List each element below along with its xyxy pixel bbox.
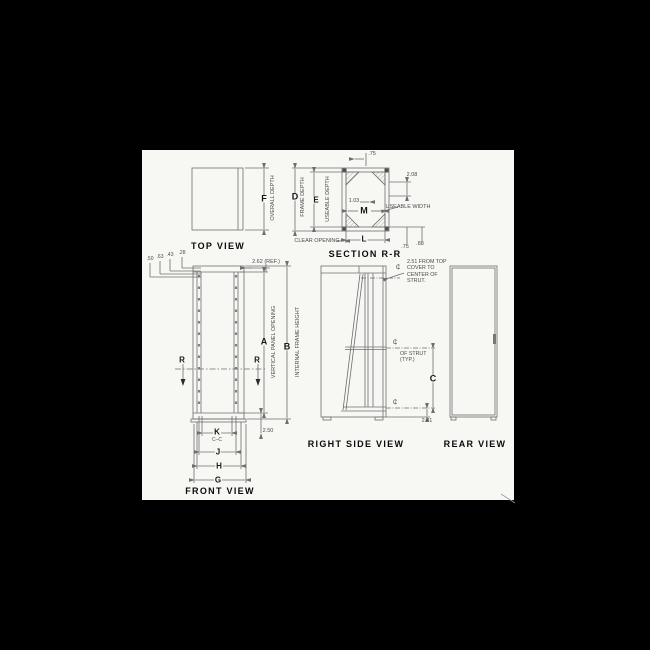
front-offset-4: .28: [179, 250, 186, 256]
strut-location-note: 2.51 FROM TOP COVER TO CENTER OF STRUT.: [407, 259, 447, 285]
right-side-view-title: RIGHT SIDE VIEW: [308, 439, 405, 449]
frame-depth-label: FRAME DEPTH: [300, 177, 306, 216]
corner-mark: [501, 494, 515, 503]
page: { "colors": { "background": "#000000", "…: [0, 0, 650, 650]
useable-width-label: USEABLE WIDTH: [386, 204, 431, 210]
drawing-sheet: F OVERALL DEPTH TOP VIEW D FRAME DEPTH E…: [142, 150, 514, 500]
front-bottom-ref-value: 2.50: [263, 428, 274, 434]
dim-letter-a: A: [260, 339, 269, 346]
strut-location-note-line4: STRUT.: [407, 278, 447, 284]
centerline-symbol-top: ₵: [396, 265, 400, 271]
section-rr-title: SECTION R-R: [329, 249, 402, 259]
centerline-symbol-bottom: ₵: [393, 400, 397, 406]
strut-typ-note: OF STRUT (TYP.): [400, 351, 426, 364]
useable-depth-label: USEABLE DEPTH: [325, 176, 331, 222]
overall-depth-label: OVERALL DEPTH: [270, 175, 276, 220]
internal-frame-height-label: INTERNAL FRAME HEIGHT: [295, 307, 301, 377]
clear-opening-label: CLEAR OPENING: [294, 238, 339, 244]
dim-letter-f: F: [260, 196, 268, 203]
rear-offset-value: 2.08: [407, 172, 418, 178]
dim-letter-g: G: [214, 477, 222, 484]
rear-view-title: REAR VIEW: [444, 439, 507, 449]
dim-letter-c: C: [429, 376, 438, 383]
dim-letter-e: E: [312, 197, 319, 204]
dim-letter-j: J: [215, 449, 221, 456]
rear-view-outline: [450, 266, 497, 420]
bottom-offset-b-value: .88: [416, 241, 424, 247]
gusset-offset-value: 1.03: [349, 198, 360, 204]
strut-typ-note-line2: (TYP.): [400, 357, 426, 363]
dim-letter-l: L: [361, 236, 368, 243]
dim-letter-b: B: [283, 344, 292, 351]
front-offset-2: .63: [157, 254, 164, 260]
bottom-offset-a-value: .75: [401, 244, 409, 250]
dim-letter-h: H: [215, 463, 223, 470]
dim-letter-d: D: [291, 194, 300, 201]
top-view-outline: [192, 168, 269, 230]
section-marker-r-left: R: [178, 357, 186, 364]
front-top-ref-value: 2.62 (REF.): [252, 259, 280, 265]
dim-letter-k: K: [213, 429, 221, 436]
top-view-title: TOP VIEW: [191, 241, 245, 251]
right-side-view-outline: [321, 266, 435, 420]
section-marker-r-right: R: [253, 357, 261, 364]
centerline-symbol-mid: ₵: [393, 340, 397, 346]
vertical-panel-opening-label: VERTICAL PANEL OPENING: [271, 306, 277, 378]
k-note: C–C: [212, 437, 222, 443]
front-view-title: FRONT VIEW: [185, 486, 255, 496]
top-thickness-value: .75: [368, 151, 376, 157]
dim-letter-m: M: [359, 208, 369, 215]
front-offset-1: .50: [147, 256, 154, 262]
front-offset-3: .43: [167, 252, 174, 258]
side-bottom-ref-value: 2.41: [422, 418, 433, 424]
